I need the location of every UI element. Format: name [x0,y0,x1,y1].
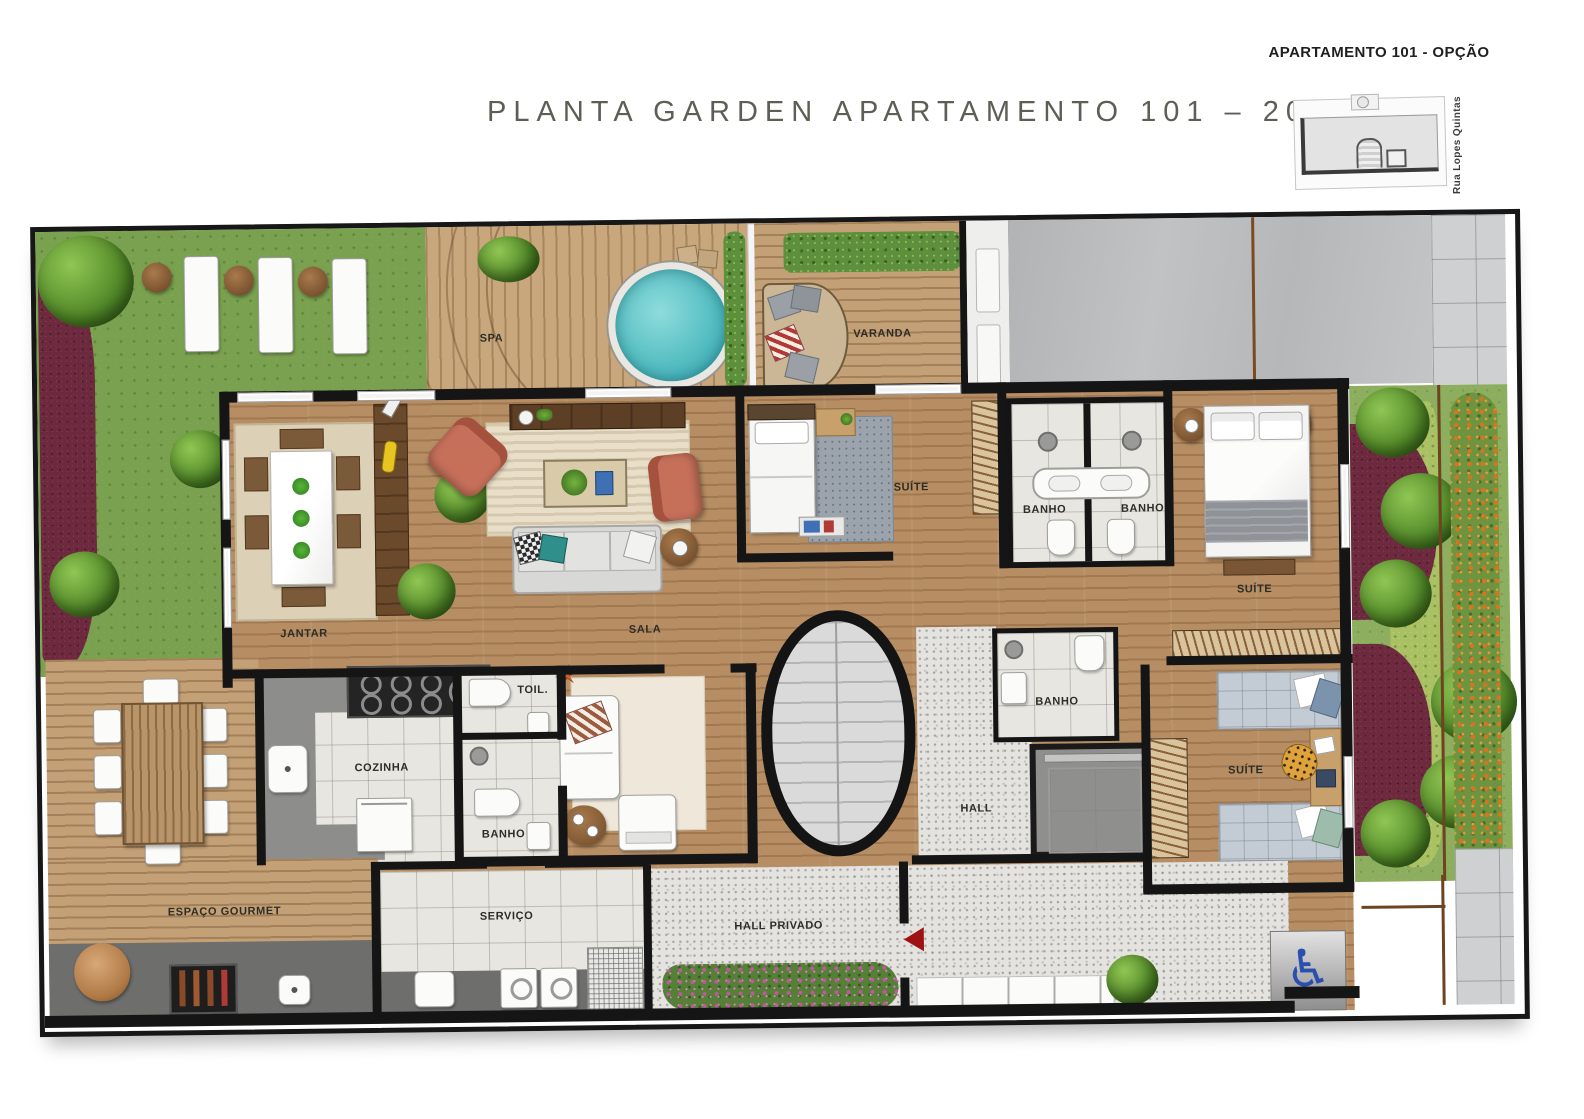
room-label-varanda: VARANDA [853,327,912,340]
elevator-cab [1048,767,1143,854]
wall-hallprivado-right-1 [899,861,909,923]
skateboard-decor [381,440,398,473]
pillow [1258,412,1302,441]
hall-landing-2 [917,740,1032,861]
suite3-wardrobe [1149,738,1188,858]
skewer [207,970,213,1006]
burner [421,693,442,714]
sofa-cushion [564,531,610,572]
chaise-seat-line [565,752,613,755]
sofa-pillow-teal [538,534,568,564]
sofa [512,524,663,594]
burner [391,694,412,715]
street-label: Rua Lopes Quintas [1452,92,1463,194]
coffee-table [543,459,628,508]
spa-deck [425,223,749,395]
keyplan-title: APARTAMENTO 101 - OPÇÃO [1267,44,1491,61]
side-table [224,265,254,295]
table-plant [561,469,587,495]
toilet [474,788,520,817]
suite1-desk [815,408,855,436]
gourmet-chair [94,801,122,835]
pillow [755,422,809,445]
wall-servico-top-2 [545,859,649,868]
master-bed [1203,405,1311,558]
plate [293,510,310,527]
suite1-bed [748,405,816,534]
fridge-handle [361,803,407,806]
table-book [595,471,613,495]
gourmet-table [121,702,205,845]
window-jantar-1 [237,392,313,403]
side-table [142,262,172,292]
hedge-divider [723,231,747,387]
bed-bench [1223,559,1295,576]
fridge [356,798,413,853]
vase-decor [518,410,533,425]
window-sala [585,387,671,398]
toilet [1074,635,1104,671]
floor-plan: SPA VARANDA JANTAR [30,209,1530,1037]
room-label-hall: HALL [960,802,992,814]
shower-fixture [469,747,488,766]
kitchen-sink [267,745,308,793]
small-sink [527,712,549,734]
basin [1100,475,1132,491]
laundry-sink [414,971,454,1007]
skewer [179,970,185,1006]
suite3-bed-bottom [1218,802,1343,862]
gourmet-chair [94,755,122,789]
daybed-pillow [790,285,822,313]
ottoman [618,794,677,851]
shower-fixture [1038,432,1058,452]
washer [540,968,577,1008]
room-label-hall-privado: HALL PRIVADO [734,919,823,932]
wall-banho-social-right [558,786,568,864]
wall-bottom-step [1284,986,1359,999]
cup [672,540,688,556]
ottoman-line [626,831,672,844]
skewer [221,970,227,1006]
plate [292,478,309,495]
dining-chair [337,514,361,548]
toilet [1047,519,1075,555]
dining-chair [245,515,269,549]
side-table [298,267,328,297]
nook-round-table [564,805,606,846]
dining-chair [280,429,324,450]
bbq-grill [169,964,238,1015]
window-suite3-right [1344,756,1354,828]
lounger [257,257,293,353]
headboard [747,404,815,421]
room-label-sala: SALA [629,623,662,635]
washer-door [510,978,532,1000]
pink-flower-hedge [662,962,899,1011]
staircase [760,609,917,857]
tiled-patio-bottomright [1455,848,1515,1005]
room-label-suite3: SUÍTE [1228,764,1264,776]
armchair-coral-2 [647,452,704,523]
room-label-jantar: JANTAR [280,628,328,641]
planter-column [966,220,1012,389]
washer-door [550,978,572,1000]
gourmet-chair [93,709,121,743]
chaise-pillow-striped [564,700,613,744]
gourmet-chair [143,678,179,704]
chaise [559,695,620,800]
desk-paper [1313,736,1336,755]
pillow [1210,412,1254,441]
wall-toil-banho-divider [455,732,565,740]
bbq-sink [278,975,310,1005]
keyplan-elevator-square [1386,149,1406,168]
planter-box [976,324,1001,384]
blanket-fold [750,476,812,479]
basin [1048,475,1080,491]
accessible-pad: ♿ [1270,930,1347,1011]
stairs-center-line [835,621,840,847]
window-jantar-left-2 [223,548,232,628]
room-label-banho-top-right: BANHO [1121,502,1164,515]
suite1-tv-shelf [799,516,845,537]
window-master-right [1340,464,1350,548]
room-label-spa: SPA [480,332,504,344]
entry-arrow [904,927,924,951]
cup [572,813,584,825]
washer [500,968,537,1008]
dining-chair [336,456,360,490]
window-jantar-2 [357,390,435,401]
cup [586,825,598,837]
dining-chair [282,587,326,608]
room-label-banho-social: BANHO [482,828,525,841]
keyplan-diagram [1293,92,1449,192]
tiled-patio-topright [1431,214,1507,385]
lounger [183,256,219,352]
keyplan-stair-arch [1356,138,1383,169]
suite3-bed-top [1217,670,1342,730]
small-sink [526,822,550,850]
lounger [332,258,368,354]
elevator-door-bar [1044,753,1144,763]
room-label-servico: SERVIÇO [480,910,534,923]
bottomright-fence-mark [1441,875,1446,1005]
floor-plan-page: { "header": { "title_main": "PLANTA GARD… [0,0,1584,1119]
faucet [291,987,297,993]
faucet [285,766,291,772]
burner [361,694,382,715]
shower-fixture [1122,431,1142,451]
room-label-suite1: SUÍTE [894,481,930,493]
dining-table [270,450,334,585]
daybed-pillow [784,352,819,384]
wall-suite1-bottom [737,552,893,563]
wall-servico-left [371,862,382,1018]
dining-chair [244,457,268,491]
toilet [469,678,511,707]
bottomright-fence-mark [1361,905,1445,909]
drying-rack [587,947,644,1012]
wall-toil-right [557,666,567,740]
plate [293,542,310,559]
room-label-banho-hall: BANHO [1035,695,1078,708]
small-sink [1001,672,1027,704]
shelf-box [824,520,834,532]
window-suite1 [875,384,961,395]
window-jantar-left-1 [222,440,231,520]
room-label-cozinha: COZINHA [355,762,409,775]
blanket-band [1206,500,1309,543]
elevator [1029,742,1156,858]
concrete-terrace [1008,215,1433,388]
room-label-banho-top-left: BANHO [1023,503,1066,516]
lamp [1185,419,1199,433]
sala-console [509,402,685,430]
shared-vanity [1032,466,1150,499]
deck-cushion [697,249,719,269]
tv [804,521,820,533]
shower-fixture [1004,640,1023,659]
duvet [1205,442,1308,501]
planter-box [975,248,1000,312]
desk-plant [840,413,852,425]
varanda-hedge [783,231,959,273]
toilet [1107,519,1135,555]
orange-flower-strip [1449,392,1503,867]
plant-decor [536,409,552,421]
varanda-daybed [762,282,849,391]
skewer [193,970,199,1006]
desk-laptop [1316,769,1336,787]
room-label-gourmet: ESPAÇO GOURMET [168,905,281,918]
wall-servico-top-1 [371,861,487,870]
page-title-text: PLANTA GARDEN APARTAMENTO 101 – 207,19M [487,96,1425,128]
room-label-toil: TOIL. [517,684,548,696]
room-label-suite-master: SUÍTE [1237,583,1273,595]
